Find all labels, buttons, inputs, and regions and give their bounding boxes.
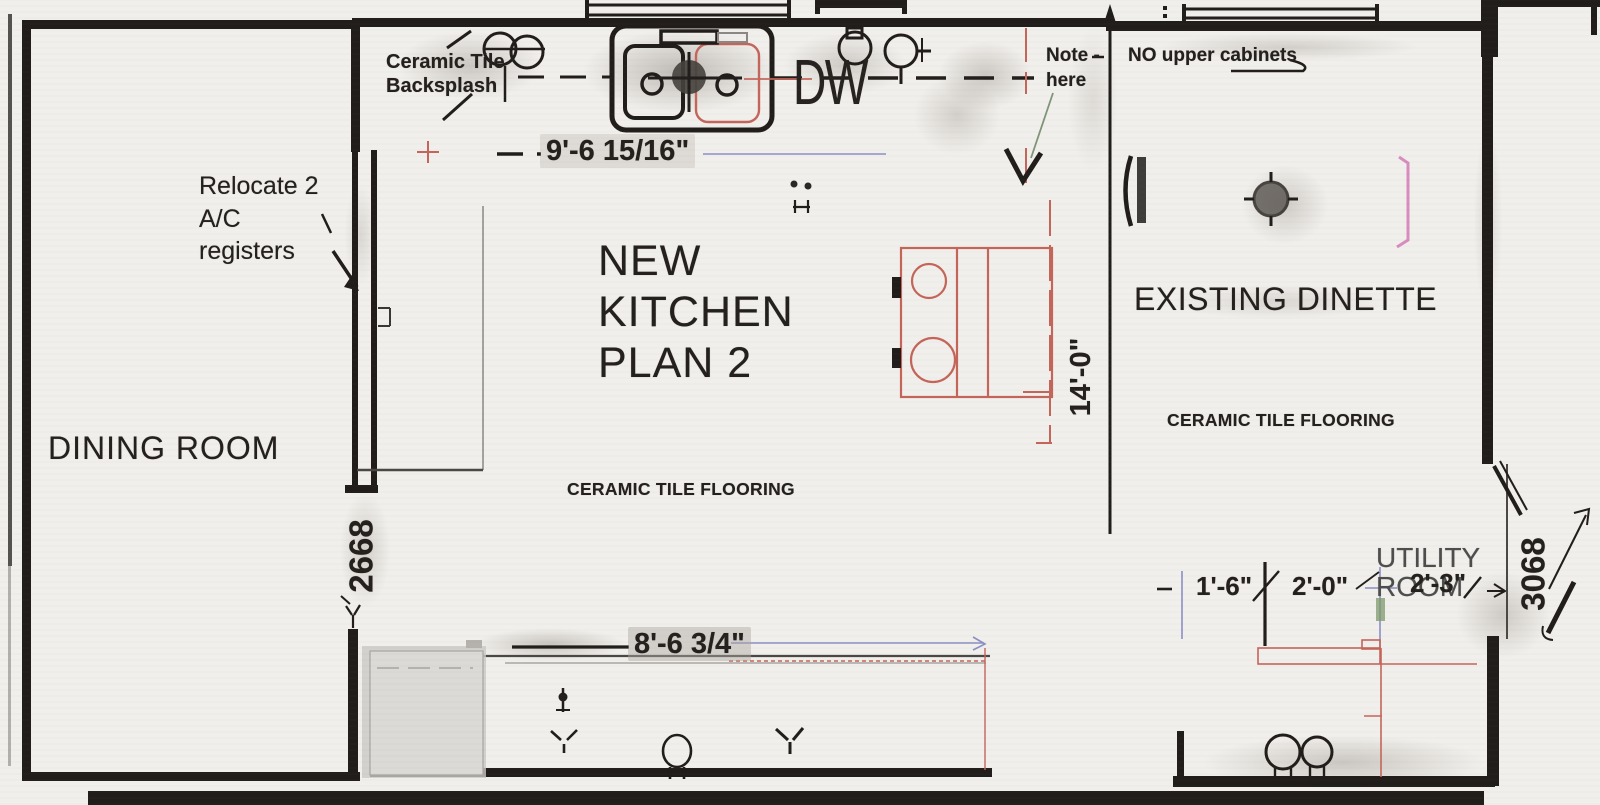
- walls: [8, 0, 1600, 805]
- dryer-standpipe-symbol: [1302, 737, 1332, 767]
- island-dimension-label: 8'-6 3/4": [628, 627, 751, 661]
- note-here-label: Note - here: [1046, 44, 1100, 93]
- flooring-note-kitchen: CERAMIC TILE FLOORING: [567, 479, 795, 500]
- kitchen-depth-dimension-line: [1103, 4, 1117, 534]
- ceiling-fan-icon: [1244, 172, 1298, 226]
- dining-door-jambs: [341, 596, 360, 628]
- dinette-window: [1163, 4, 1379, 22]
- pink-bracket-symbol: [1397, 157, 1408, 247]
- dining-room-label: DINING ROOM: [48, 430, 279, 468]
- no-upper-cabinets-label: NO upper cabinets: [1128, 45, 1297, 67]
- dining-door-label: 2668: [343, 519, 382, 592]
- range-symbol: [892, 200, 1052, 444]
- flooring-note-dinette: CERAMIC TILE FLOORING: [1167, 410, 1395, 431]
- laundry-fixtures: [1258, 598, 1477, 781]
- floor-plan: Ceramic Tile Backsplash Relocate 2 A/C r…: [0, 0, 1600, 805]
- floorplan-linework: [0, 0, 1600, 805]
- utility-dimension-1: 1'-6": [1196, 571, 1252, 602]
- shutter-symbol: [1137, 157, 1146, 223]
- outlet-symbol: [776, 728, 803, 754]
- dinette-fixtures: [1126, 156, 1409, 247]
- counter-dimension-label: 9'-6 15/16": [540, 134, 695, 168]
- refrigerator-symbol: [370, 651, 483, 775]
- relocate-ac-note: Relocate 2 A/C registers: [199, 170, 319, 268]
- outlet-symbol: [551, 730, 577, 753]
- existing-dinette-label: EXISTING DINETTE: [1134, 281, 1437, 319]
- kitchen-plan-title: NEW KITCHEN PLAN 2: [598, 236, 794, 389]
- kitchen-window: [585, 0, 791, 19]
- utility-dimension-2: 2'-0": [1292, 571, 1348, 602]
- misc-plan-glyphs: [791, 181, 812, 214]
- utility-door-label: 3068: [1515, 537, 1554, 610]
- kitchen-depth-dimension-label: 14'-0": [1064, 338, 1098, 417]
- utility-dimension-3: 2'-3": [1410, 568, 1466, 599]
- dishwasher-label: DW: [793, 45, 867, 121]
- washer-standpipe-symbol: [1266, 735, 1300, 769]
- backsplash-note: Ceramic Tile Backsplash: [386, 50, 505, 98]
